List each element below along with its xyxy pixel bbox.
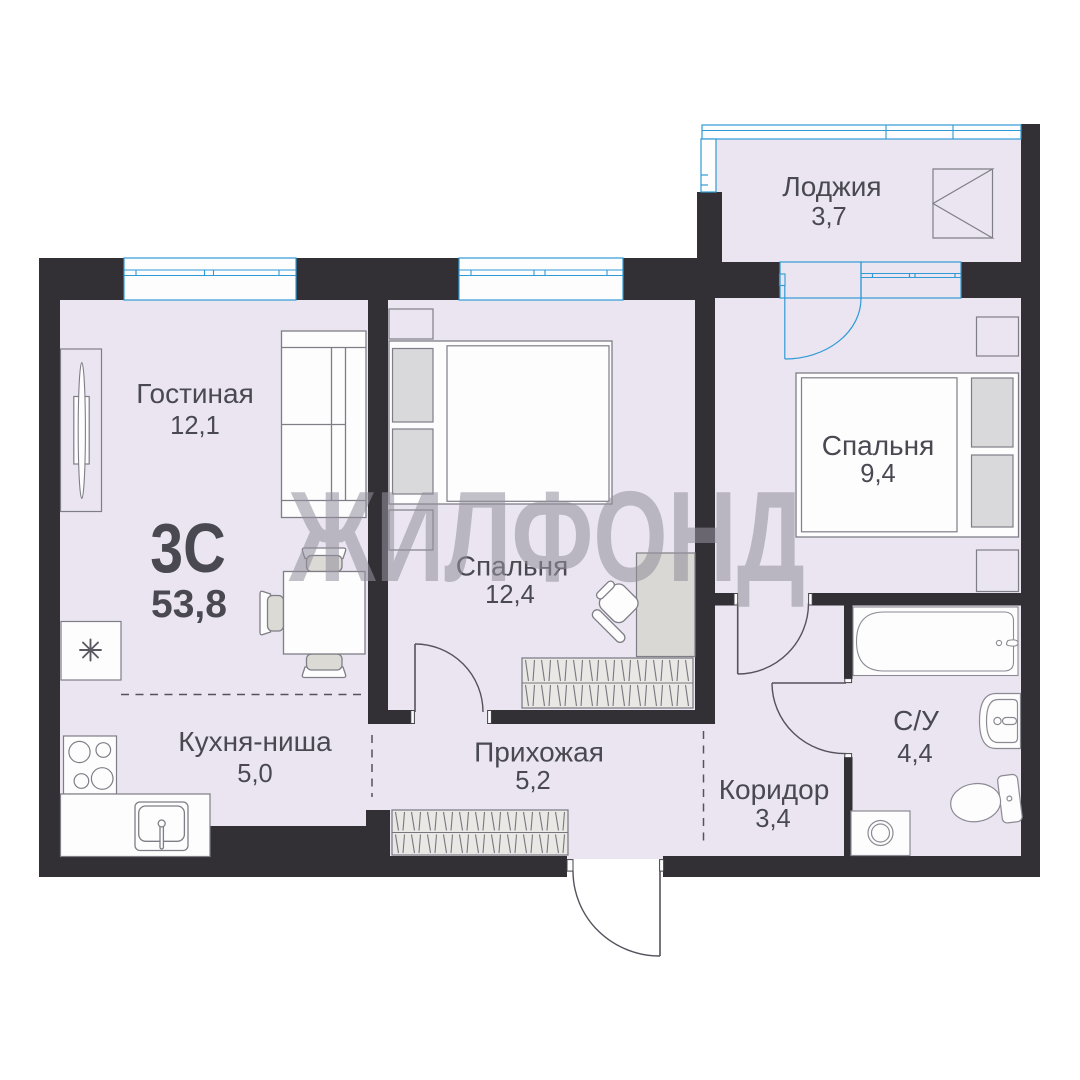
svg-text:4,4: 4,4 [897,740,932,768]
svg-text:Прихожая: Прихожая [474,737,604,768]
svg-text:3,7: 3,7 [811,203,846,231]
svg-text:5,2: 5,2 [515,767,550,795]
svg-text:С/У: С/У [893,705,939,736]
svg-text:3,4: 3,4 [755,805,790,833]
svg-text:9,4: 9,4 [860,460,895,488]
svg-text:Кухня-ниша: Кухня-ниша [178,726,332,757]
svg-text:ЖИЛФОНД: ЖИЛФОНД [288,465,805,609]
svg-text:Коридор: Коридор [719,774,830,805]
svg-text:Спальня: Спальня [822,430,935,461]
svg-text:12,1: 12,1 [170,412,220,440]
svg-text:53,8: 53,8 [151,583,227,626]
svg-text:Гостиная: Гостиная [136,378,254,409]
svg-text:Лоджия: Лоджия [782,171,881,202]
svg-text:5,0: 5,0 [237,760,272,788]
svg-text:3С: 3С [150,509,226,587]
